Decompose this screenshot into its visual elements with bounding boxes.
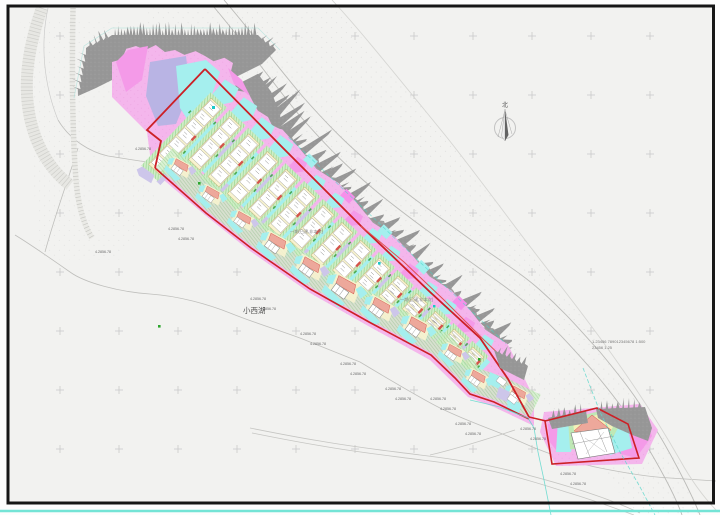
svg-text:4.2856.78: 4.2856.78 <box>178 237 194 241</box>
svg-text:4.2856.78: 4.2856.78 <box>385 387 401 391</box>
svg-text:4.2856.78: 4.2856.78 <box>530 437 546 441</box>
svg-text:4.2856.78: 4.2856.78 <box>430 397 446 401</box>
svg-text:4.2856.78: 4.2856.78 <box>95 250 111 254</box>
svg-text:4.2856.78: 4.2856.78 <box>300 332 316 336</box>
svg-text:4.2856.78: 4.2856.78 <box>340 362 356 366</box>
svg-text:4.2856.78: 4.2856.78 <box>455 422 471 426</box>
svg-text:北: 北 <box>502 101 508 109</box>
svg-text:23456 1.25: 23456 1.25 <box>592 345 613 350</box>
svg-text:一期(已建,非本次): 一期(已建,非本次) <box>400 296 434 303</box>
svg-text:4.2856.78: 4.2856.78 <box>350 372 366 376</box>
svg-text:4.2856.78: 4.2856.78 <box>440 407 456 411</box>
svg-text:4.2856.78: 4.2856.78 <box>310 342 326 346</box>
svg-text:小西湖: 小西湖 <box>243 306 266 315</box>
svg-text:4.2856.78: 4.2856.78 <box>560 472 576 476</box>
svg-text:4.2856.78: 4.2856.78 <box>465 432 481 436</box>
svg-text:1.23456 789012345678 1:500: 1.23456 789012345678 1:500 <box>592 339 646 344</box>
svg-text:4.2856.78: 4.2856.78 <box>168 227 184 231</box>
svg-text:4.2856.78: 4.2856.78 <box>135 147 151 151</box>
svg-text:一期(已建,非本次): 一期(已建,非本次) <box>290 228 324 235</box>
svg-text:4.2856.78: 4.2856.78 <box>395 397 411 401</box>
svg-text:4.2856.78: 4.2856.78 <box>520 427 536 431</box>
svg-text:4.2856.78: 4.2856.78 <box>570 482 586 486</box>
svg-text:4.2856.78: 4.2856.78 <box>250 297 266 301</box>
